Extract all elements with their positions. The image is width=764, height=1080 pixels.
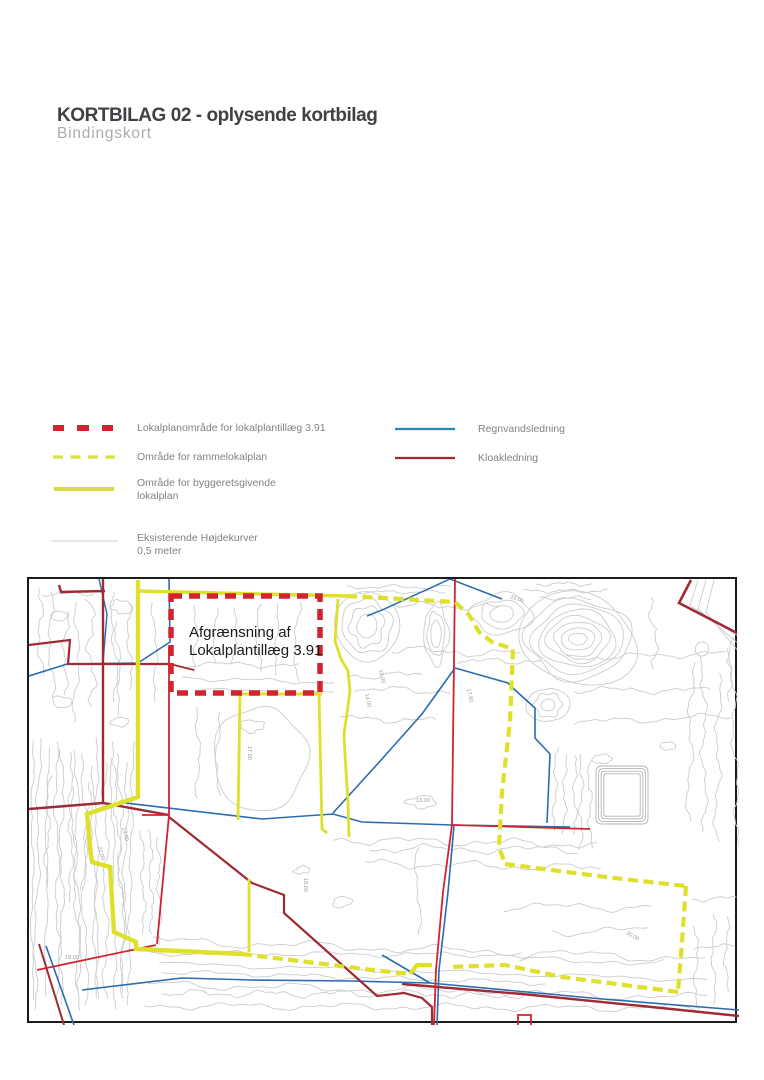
- svg-text:14.00: 14.00: [363, 693, 372, 708]
- svg-text:Afgrænsning af: Afgrænsning af: [189, 624, 292, 641]
- svg-text:20.00: 20.00: [625, 931, 640, 943]
- svg-text:17.00: 17.00: [246, 746, 252, 760]
- svg-text:18.00: 18.00: [65, 955, 79, 961]
- svg-text:16.00: 16.00: [377, 669, 386, 684]
- svg-text:22.00: 22.00: [96, 846, 105, 861]
- svg-text:17.50: 17.50: [465, 688, 474, 703]
- svg-text:13.00: 13.00: [416, 798, 430, 804]
- svg-text:Lokalplantillæg 3.91: Lokalplantillæg 3.91: [189, 642, 322, 659]
- svg-text:18.00: 18.00: [302, 878, 308, 892]
- svg-text:15.00: 15.00: [509, 594, 524, 604]
